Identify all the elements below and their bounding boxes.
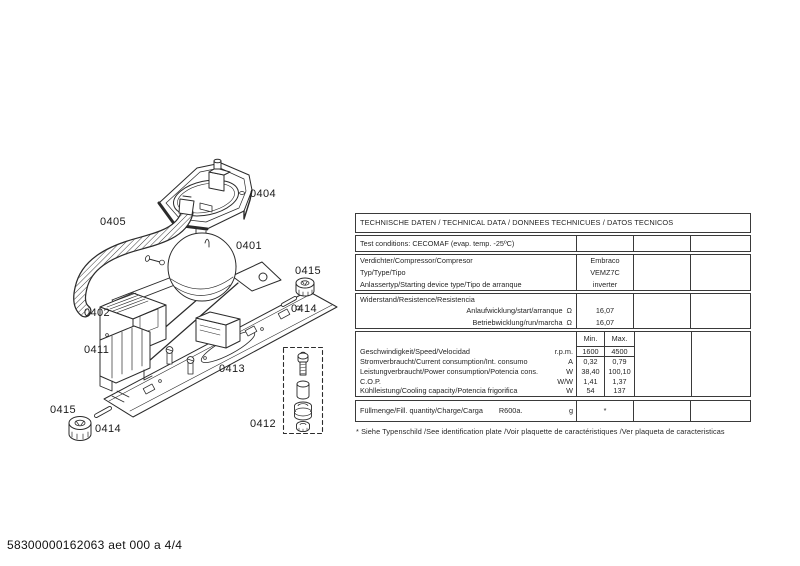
- min-value: 0,32: [576, 357, 604, 367]
- resistance-heading: Widerstand/Resistence/Resistencia: [356, 294, 576, 305]
- part-label-0414-lower: 0414: [95, 423, 121, 435]
- unit-label: g: [566, 407, 573, 414]
- unit-label: r.p.m.: [552, 348, 573, 355]
- unit-label: Ω: [567, 307, 572, 314]
- spec-label: Anlaufwicklung/start/arranque: [466, 307, 562, 314]
- footnote: * Siehe Typenschild /See identification …: [356, 427, 725, 436]
- refrigerant-label: R600a.: [499, 407, 523, 414]
- spec-label-cell: Leistungverbraucht/Power consumption/Pot…: [356, 367, 576, 377]
- grommet-lower-drawing: [69, 417, 91, 441]
- spec-label: Typ/Type/Tipo: [356, 267, 576, 279]
- spec-label: Kühlleistung/Cooling capacity/Potencia f…: [360, 387, 517, 394]
- empty-cell: [634, 367, 691, 377]
- empty-cell: [634, 332, 691, 347]
- empty-cell: [691, 357, 750, 367]
- spec-label: Anlassertyp/Starting device type/Tipo de…: [356, 278, 576, 290]
- document-code: 58300000162063 aet 000 a 4/4: [7, 538, 182, 552]
- unit-label: W/W: [554, 378, 573, 385]
- table-row: Typ/Type/Tipo VEMZ7C: [356, 267, 750, 279]
- table-row: Anlassertyp/Starting device type/Tipo de…: [356, 278, 750, 290]
- part-label-0404: 0404: [250, 188, 276, 200]
- max-value: 1,37: [604, 376, 634, 386]
- spec-value: VEMZ7C: [576, 267, 633, 279]
- empty-cell: [690, 278, 750, 290]
- empty-cell: [633, 236, 690, 251]
- spec-value: inverter: [576, 278, 633, 290]
- test-conditions-label: Test conditions: CECOMAF (evap. temp. -2…: [356, 236, 576, 251]
- table-row: Anlaufwicklung/start/arranque Ω 16,07: [356, 305, 750, 316]
- empty-cell: [633, 267, 690, 279]
- spec-value: 16,07: [576, 305, 633, 316]
- part-label-0401: 0401: [236, 240, 262, 252]
- spec-label: Geschwindigkeit/Speed/Velocidad: [360, 348, 470, 355]
- spec-label-cell: Kühlleistung/Cooling capacity/Potencia f…: [356, 386, 576, 396]
- spec-label: Stromverbraucht/Current consumption/Int.…: [360, 358, 528, 365]
- empty-cell: [633, 294, 690, 305]
- min-header: Min.: [576, 332, 604, 347]
- spec-label: Verdichter/Compressor/Compresor: [356, 255, 576, 267]
- empty-cell: [634, 357, 691, 367]
- unit-label: W: [563, 387, 573, 394]
- part-label-0405: 0405: [100, 216, 126, 228]
- spec-label: Leistungverbraucht/Power consumption/Pot…: [360, 368, 538, 375]
- table-row: Kühlleistung/Cooling capacity/Potencia f…: [356, 386, 750, 396]
- table-title: TECHNISCHE DATEN / TECHNICAL DATA / DONN…: [356, 214, 750, 232]
- part-label-0411: 0411: [84, 344, 109, 356]
- spec-label-cell: Anlaufwicklung/start/arranque Ω: [356, 305, 576, 316]
- unit-label: W: [563, 368, 573, 375]
- table-row: Test conditions: CECOMAF (evap. temp. -2…: [356, 236, 750, 251]
- technical-data-table: TECHNISCHE DATEN / TECHNICAL DATA / DONN…: [355, 213, 751, 424]
- empty-cell: [690, 317, 750, 328]
- empty-cell: [690, 255, 750, 267]
- unit-label: Ω: [567, 319, 572, 326]
- spec-label-cell: C.O.P. W/W: [356, 376, 576, 386]
- grommet-upper-drawing: [296, 278, 314, 296]
- table-row: Betriebwicklung/run/marcha Ω 16,07: [356, 317, 750, 328]
- empty-cell: [576, 236, 633, 251]
- max-value: 0,79: [604, 357, 634, 367]
- table-title-box: TECHNISCHE DATEN / TECHNICAL DATA / DONN…: [355, 213, 751, 233]
- empty-cell: [633, 255, 690, 267]
- spec-label-cell: Betriebwicklung/run/marcha Ω: [356, 317, 576, 328]
- empty-cell: [633, 305, 690, 316]
- empty-cell: [691, 376, 750, 386]
- empty-cell: [691, 332, 750, 347]
- empty-cell: [691, 367, 750, 377]
- empty-cell: [576, 294, 633, 305]
- spec-value: 16,07: [576, 317, 633, 328]
- empty-cell: [690, 401, 750, 421]
- part-label-0415-lower: 0415: [50, 404, 76, 416]
- empty-cell: [634, 376, 691, 386]
- table-row: Füllmenge/Fill. quantity/Charge/Carga R6…: [356, 401, 750, 421]
- table-row: Geschwindigkeit/Speed/Velocidad r.p.m. 1…: [356, 347, 750, 357]
- test-conditions-box: Test conditions: CECOMAF (evap. temp. -2…: [355, 235, 751, 252]
- charge-value: *: [576, 401, 633, 421]
- table-row: Verdichter/Compressor/Compresor Embraco: [356, 255, 750, 267]
- performance-box: Min. Max. Geschwindigkeit/Speed/Velocida…: [355, 331, 751, 397]
- min-value: 1600: [576, 347, 604, 357]
- table-row: Leistungverbraucht/Power consumption/Pot…: [356, 367, 750, 377]
- empty-cell: [690, 305, 750, 316]
- part-label-0415-upper: 0415: [295, 265, 321, 277]
- spec-label: C.O.P.: [360, 378, 381, 385]
- spec-label-cell: Stromverbraucht/Current consumption/Int.…: [356, 357, 576, 367]
- spec-label-cell: Geschwindigkeit/Speed/Velocidad r.p.m.: [356, 347, 576, 357]
- empty-cell: [633, 317, 690, 328]
- resistance-box: Widerstand/Resistence/Resistencia Anlauf…: [355, 293, 751, 329]
- empty-cell: [356, 332, 576, 347]
- max-value: 100,10: [604, 367, 634, 377]
- empty-cell: [691, 386, 750, 396]
- min-value: 1,41: [576, 376, 604, 386]
- compressor-box: Verdichter/Compressor/Compresor Embraco …: [355, 254, 751, 291]
- empty-cell: [633, 401, 690, 421]
- minmax-header-row: Min. Max.: [356, 332, 750, 347]
- pin-lower-drawing: [94, 406, 112, 418]
- empty-cell: [634, 347, 691, 357]
- table-row: Widerstand/Resistence/Resistencia: [356, 294, 750, 305]
- empty-cell: [634, 386, 691, 396]
- spec-value: Embraco: [576, 255, 633, 267]
- part-label-0413: 0413: [219, 363, 245, 375]
- charge-box: Füllmenge/Fill. quantity/Charge/Carga R6…: [355, 400, 751, 422]
- max-value: 137: [604, 386, 634, 396]
- spec-label: Betriebwicklung/run/marcha: [472, 319, 562, 326]
- part-label-0402: 0402: [84, 307, 110, 319]
- max-value: 4500: [604, 347, 634, 357]
- part-label-0412: 0412: [250, 418, 276, 430]
- table-row: C.O.P. W/W 1,41 1,37: [356, 376, 750, 386]
- part-label-0414-upper: 0414: [291, 303, 317, 315]
- unit-label: A: [565, 358, 573, 365]
- hardware-kit-drawing: [284, 348, 323, 434]
- table-row: Stromverbraucht/Current consumption/Int.…: [356, 357, 750, 367]
- charge-label-cell: Füllmenge/Fill. quantity/Charge/Carga R6…: [356, 401, 576, 421]
- spec-label: Füllmenge/Fill. quantity/Charge/Carga: [360, 407, 483, 414]
- min-value: 54: [576, 386, 604, 396]
- empty-cell: [633, 278, 690, 290]
- empty-cell: [690, 236, 750, 251]
- empty-cell: [690, 294, 750, 305]
- max-header: Max.: [604, 332, 634, 347]
- empty-cell: [691, 347, 750, 357]
- manual-page: 0404 0405 0401 0415 0414 0402 0411 0413 …: [0, 0, 800, 566]
- min-value: 38,40: [576, 367, 604, 377]
- empty-cell: [690, 267, 750, 279]
